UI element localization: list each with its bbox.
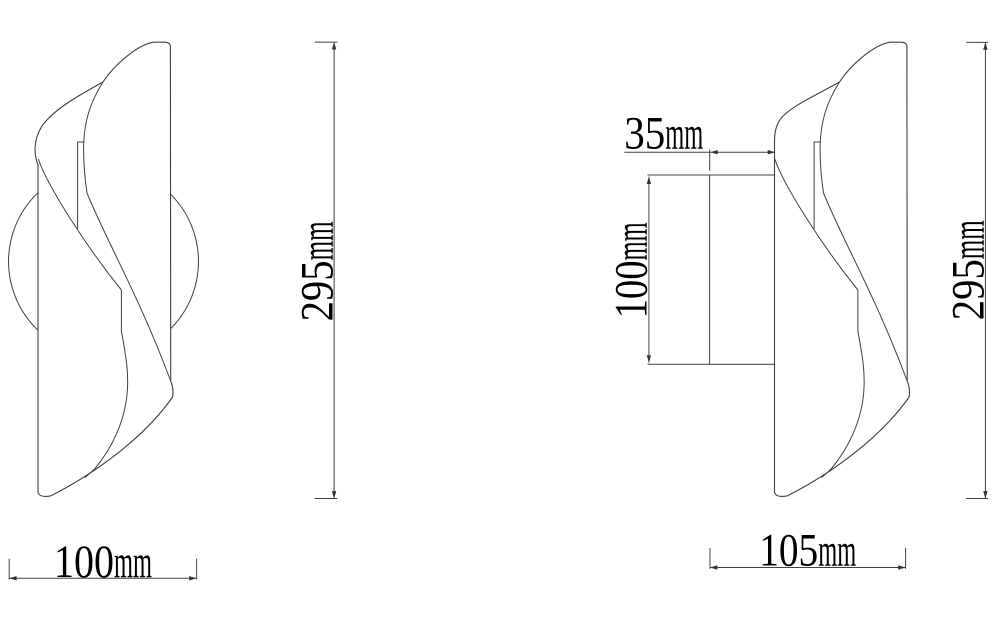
svg-text:105mm: 105mm [759, 525, 856, 577]
svg-text:295mm: 295mm [943, 220, 995, 320]
svg-text:100mm: 100mm [606, 222, 658, 318]
svg-text:35mm: 35mm [624, 108, 703, 160]
svg-text:295mm: 295mm [292, 221, 344, 321]
svg-text:100mm: 100mm [54, 536, 152, 588]
